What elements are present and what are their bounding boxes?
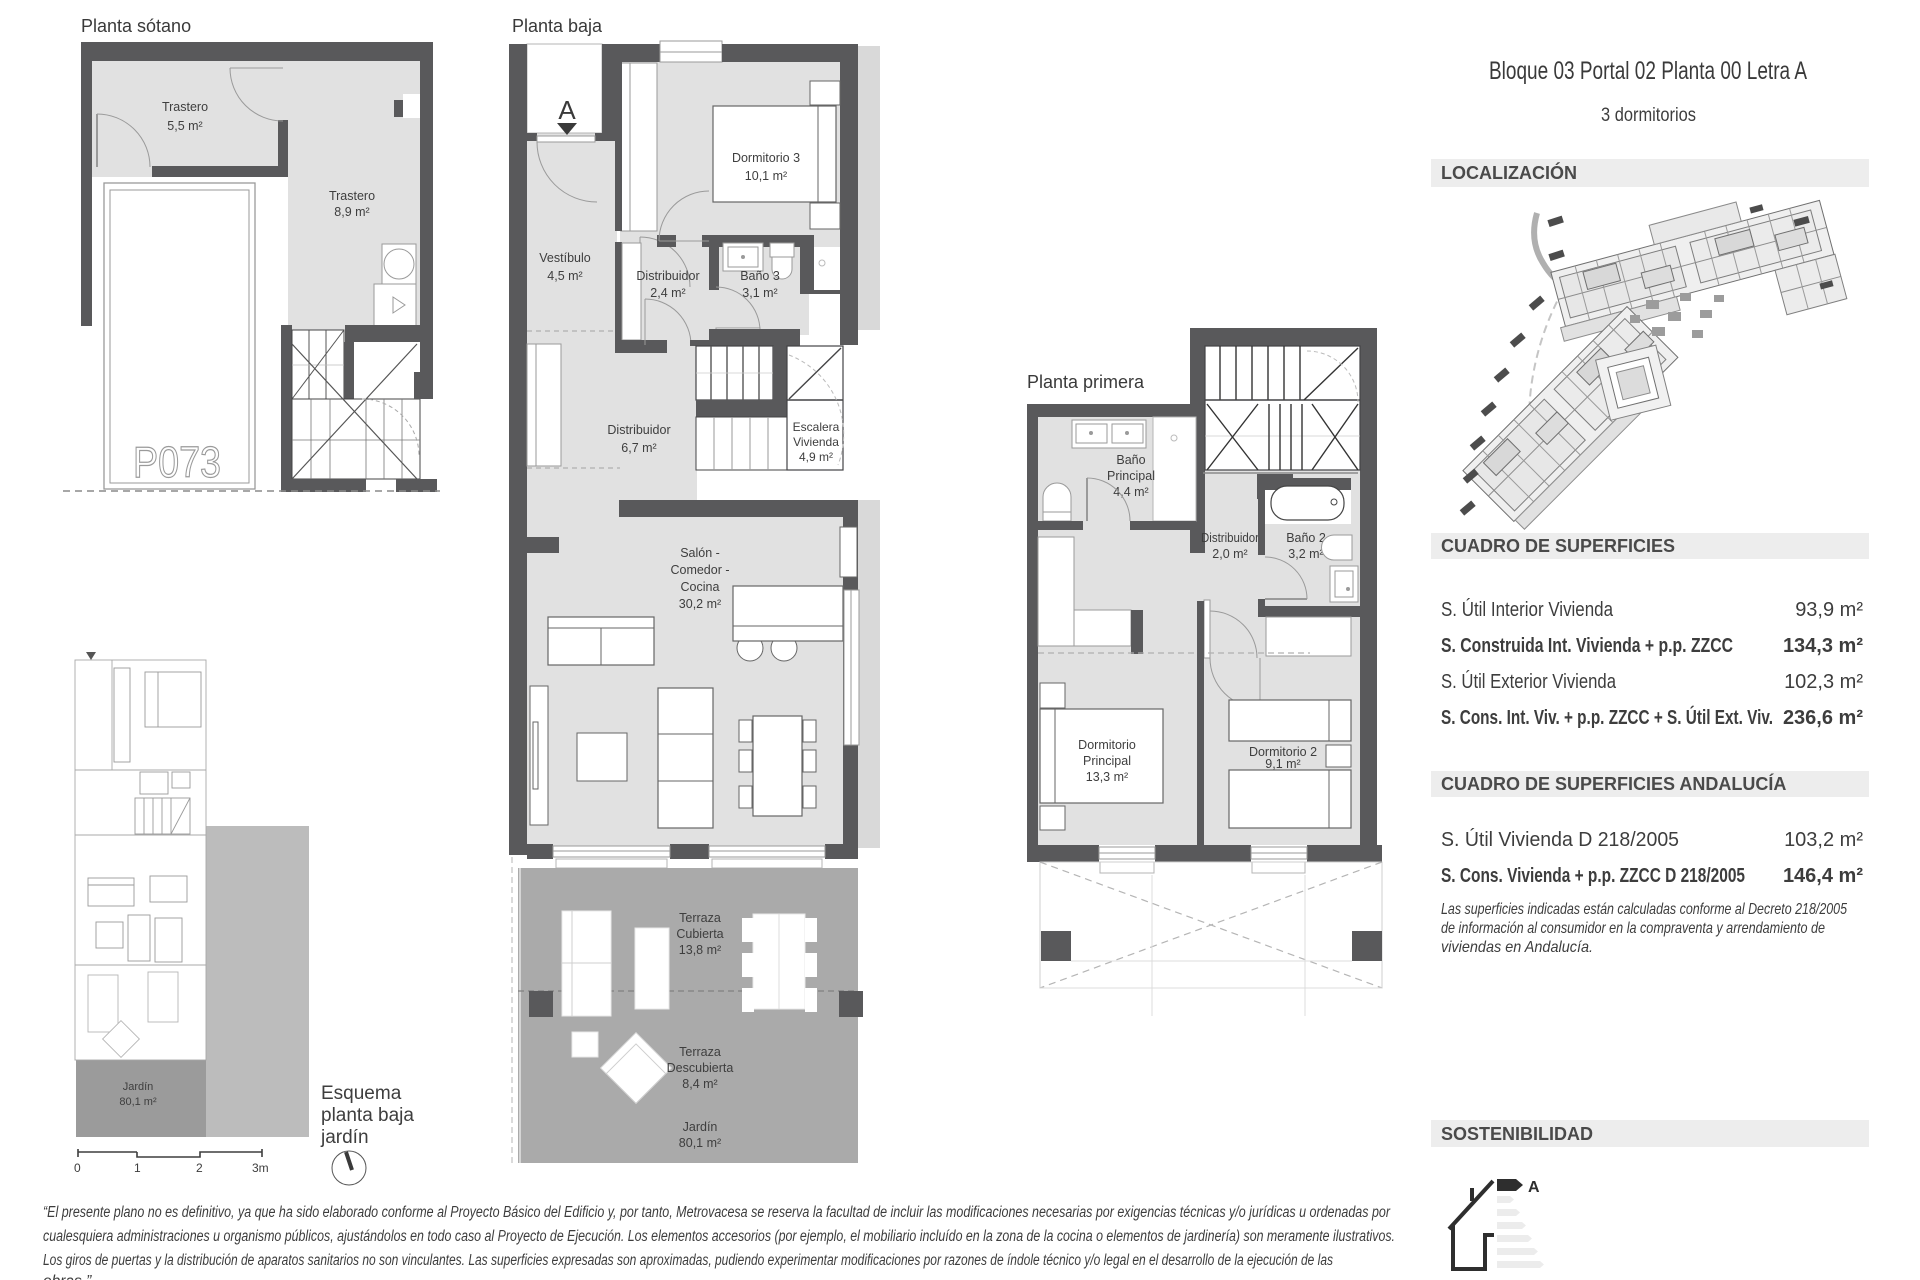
svg-text:1: 1 bbox=[134, 1161, 141, 1175]
svg-text:Baño 2: Baño 2 bbox=[1286, 531, 1326, 545]
svg-text:3 dormitorios: 3 dormitorios bbox=[1601, 105, 1696, 126]
svg-text:Jardín: Jardín bbox=[123, 1081, 154, 1093]
svg-text:Dormitorio 3: Dormitorio 3 bbox=[732, 151, 800, 165]
svg-text:146,4 m²: 146,4 m² bbox=[1783, 865, 1863, 887]
svg-text:80,1 m²: 80,1 m² bbox=[679, 1136, 721, 1150]
svg-text:jardín: jardín bbox=[320, 1127, 369, 1148]
svg-text:3m: 3m bbox=[252, 1161, 269, 1175]
svg-text:Esquema: Esquema bbox=[321, 1083, 402, 1104]
svg-text:Baño: Baño bbox=[1116, 453, 1145, 467]
svg-text:0: 0 bbox=[74, 1161, 81, 1175]
svg-text:S. Útil Exterior Vivienda: S. Útil Exterior Vivienda bbox=[1441, 670, 1617, 693]
svg-text:Las superficies indicadas está: Las superficies indicadas están calculad… bbox=[1441, 901, 1847, 918]
svg-text:SOSTENIBILIDAD: SOSTENIBILIDAD bbox=[1441, 1124, 1593, 1144]
svg-text:3,1 m²: 3,1 m² bbox=[742, 286, 777, 300]
svg-text:planta baja: planta baja bbox=[321, 1105, 414, 1126]
svg-text:6,7 m²: 6,7 m² bbox=[621, 441, 656, 455]
svg-text:Planta sótano: Planta sótano bbox=[81, 16, 191, 36]
svg-text:A: A bbox=[1528, 1179, 1540, 1196]
svg-text:Distribuidor: Distribuidor bbox=[607, 423, 670, 437]
svg-text:Trastero: Trastero bbox=[329, 189, 375, 203]
svg-text:Terraza: Terraza bbox=[679, 911, 721, 925]
svg-text:de información al consumidor e: de información al consumidor en la compr… bbox=[1441, 920, 1825, 937]
svg-text:30,2 m²: 30,2 m² bbox=[679, 597, 721, 611]
svg-text:Distribuidor: Distribuidor bbox=[1201, 531, 1259, 545]
svg-text:Comedor -: Comedor - bbox=[670, 563, 729, 577]
svg-text:S. Útil Interior Vivienda: S. Útil Interior Vivienda bbox=[1441, 598, 1614, 621]
svg-text:8,9 m²: 8,9 m² bbox=[334, 205, 369, 219]
svg-text:obras.”: obras.” bbox=[43, 1273, 92, 1280]
svg-text:236,6 m²: 236,6 m² bbox=[1783, 707, 1863, 729]
svg-text:4,9 m²: 4,9 m² bbox=[799, 450, 833, 464]
svg-text:Salón -: Salón - bbox=[680, 546, 720, 560]
svg-text:Vivienda: Vivienda bbox=[793, 435, 839, 449]
svg-text:viviendas en Andalucía.: viviendas en Andalucía. bbox=[1441, 939, 1593, 956]
svg-text:9,1 m²: 9,1 m² bbox=[1265, 757, 1300, 771]
svg-text:Distribuidor: Distribuidor bbox=[636, 269, 699, 283]
svg-text:S. Útil Vivienda D 218/2005: S. Útil Vivienda D 218/2005 bbox=[1441, 828, 1679, 851]
svg-text:103,2 m²: 103,2 m² bbox=[1784, 829, 1863, 851]
svg-text:Baño 3: Baño 3 bbox=[740, 269, 780, 283]
svg-text:13,8 m²: 13,8 m² bbox=[679, 943, 721, 957]
svg-text:Planta baja: Planta baja bbox=[512, 16, 603, 36]
svg-text:Cubierta: Cubierta bbox=[676, 927, 723, 941]
svg-text:Trastero: Trastero bbox=[162, 100, 208, 114]
svg-text:Los giros de puertas y la dist: Los giros de puertas y la distribución d… bbox=[43, 1252, 1333, 1269]
svg-text:Descubierta: Descubierta bbox=[667, 1061, 734, 1075]
svg-text:Planta primera: Planta primera bbox=[1027, 372, 1145, 392]
svg-text:Cocina: Cocina bbox=[681, 580, 720, 594]
svg-text:80,1 m²: 80,1 m² bbox=[119, 1096, 157, 1108]
svg-text:Vestíbulo: Vestíbulo bbox=[539, 251, 590, 265]
svg-text:4,5 m²: 4,5 m² bbox=[547, 269, 582, 283]
svg-text:Principal: Principal bbox=[1083, 754, 1131, 768]
svg-text:cualesquiera administraciones: cualesquiera administraciones u organism… bbox=[43, 1228, 1395, 1245]
svg-text:LOCALIZACIÓN: LOCALIZACIÓN bbox=[1441, 162, 1577, 183]
svg-text:“El presente plano no es defin: “El presente plano no es definitivo, ya … bbox=[43, 1204, 1391, 1221]
svg-text:13,3 m²: 13,3 m² bbox=[1086, 770, 1128, 784]
svg-text:134,3 m²: 134,3 m² bbox=[1783, 635, 1863, 657]
svg-text:2: 2 bbox=[196, 1161, 203, 1175]
svg-text:Principal: Principal bbox=[1107, 469, 1155, 483]
svg-text:102,3 m²: 102,3 m² bbox=[1784, 671, 1863, 693]
svg-text:CUADRO DE SUPERFICIES: CUADRO DE SUPERFICIES bbox=[1441, 536, 1675, 556]
svg-text:CUADRO DE SUPERFICIES ANDALUCÍ: CUADRO DE SUPERFICIES ANDALUCÍA bbox=[1441, 773, 1786, 794]
svg-text:Dormitorio: Dormitorio bbox=[1078, 738, 1136, 752]
svg-text:Escalera: Escalera bbox=[793, 420, 840, 434]
svg-text:P073: P073 bbox=[133, 438, 221, 487]
svg-text:Jardín: Jardín bbox=[683, 1120, 718, 1134]
svg-text:S. Cons. Vivienda + p.p. ZZCC: S. Cons. Vivienda + p.p. ZZCC D 218/2005 bbox=[1441, 865, 1745, 887]
svg-text:Bloque 03 Portal 02 Planta 00: Bloque 03 Portal 02 Planta 00 Letra A bbox=[1489, 57, 1807, 85]
svg-text:2,0 m²: 2,0 m² bbox=[1212, 547, 1247, 561]
svg-text:S. Cons. Int. Viv. + p.p. ZZCC: S. Cons. Int. Viv. + p.p. ZZCC + S. Útil… bbox=[1441, 705, 1773, 729]
svg-text:S. Construida Int. Vivienda +: S. Construida Int. Vivienda + p.p. ZZCC bbox=[1441, 635, 1733, 657]
svg-text:8,4 m²: 8,4 m² bbox=[682, 1077, 717, 1091]
svg-text:3,2 m²: 3,2 m² bbox=[1288, 547, 1323, 561]
svg-text:2,4 m²: 2,4 m² bbox=[650, 286, 685, 300]
svg-text:10,1 m²: 10,1 m² bbox=[745, 169, 787, 183]
svg-text:Terraza: Terraza bbox=[679, 1045, 721, 1059]
svg-text:5,5 m²: 5,5 m² bbox=[167, 119, 202, 133]
svg-text:93,9 m²: 93,9 m² bbox=[1795, 599, 1863, 621]
svg-text:A: A bbox=[558, 95, 576, 125]
